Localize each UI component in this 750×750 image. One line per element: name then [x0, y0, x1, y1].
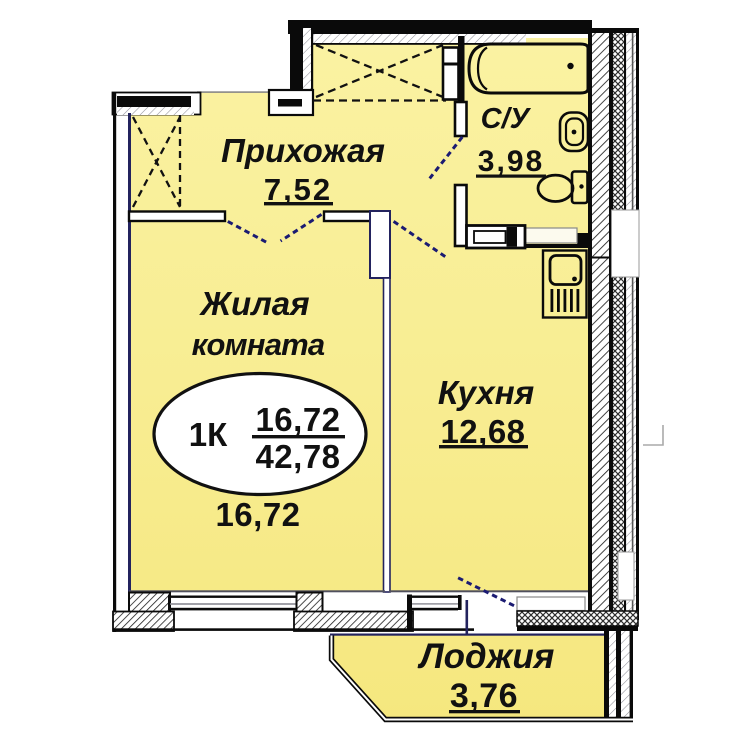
svg-text:комната: комната: [192, 327, 325, 362]
svg-text:С/У: С/У: [481, 103, 532, 135]
svg-text:Кухня: Кухня: [438, 374, 534, 411]
svg-text:1К: 1К: [189, 416, 228, 453]
svg-text:Лоджия: Лоджия: [417, 637, 555, 676]
svg-text:16,72: 16,72: [215, 496, 300, 533]
svg-text:42,78: 42,78: [255, 438, 340, 475]
svg-text:16,72: 16,72: [255, 401, 340, 438]
svg-text:Прихожая: Прихожая: [221, 132, 385, 169]
svg-text:7,52: 7,52: [264, 172, 332, 207]
svg-text:3,76: 3,76: [450, 677, 518, 715]
svg-text:12,68: 12,68: [440, 413, 525, 450]
svg-text:Жилая: Жилая: [198, 285, 309, 322]
svg-text:3,98: 3,98: [478, 145, 544, 178]
